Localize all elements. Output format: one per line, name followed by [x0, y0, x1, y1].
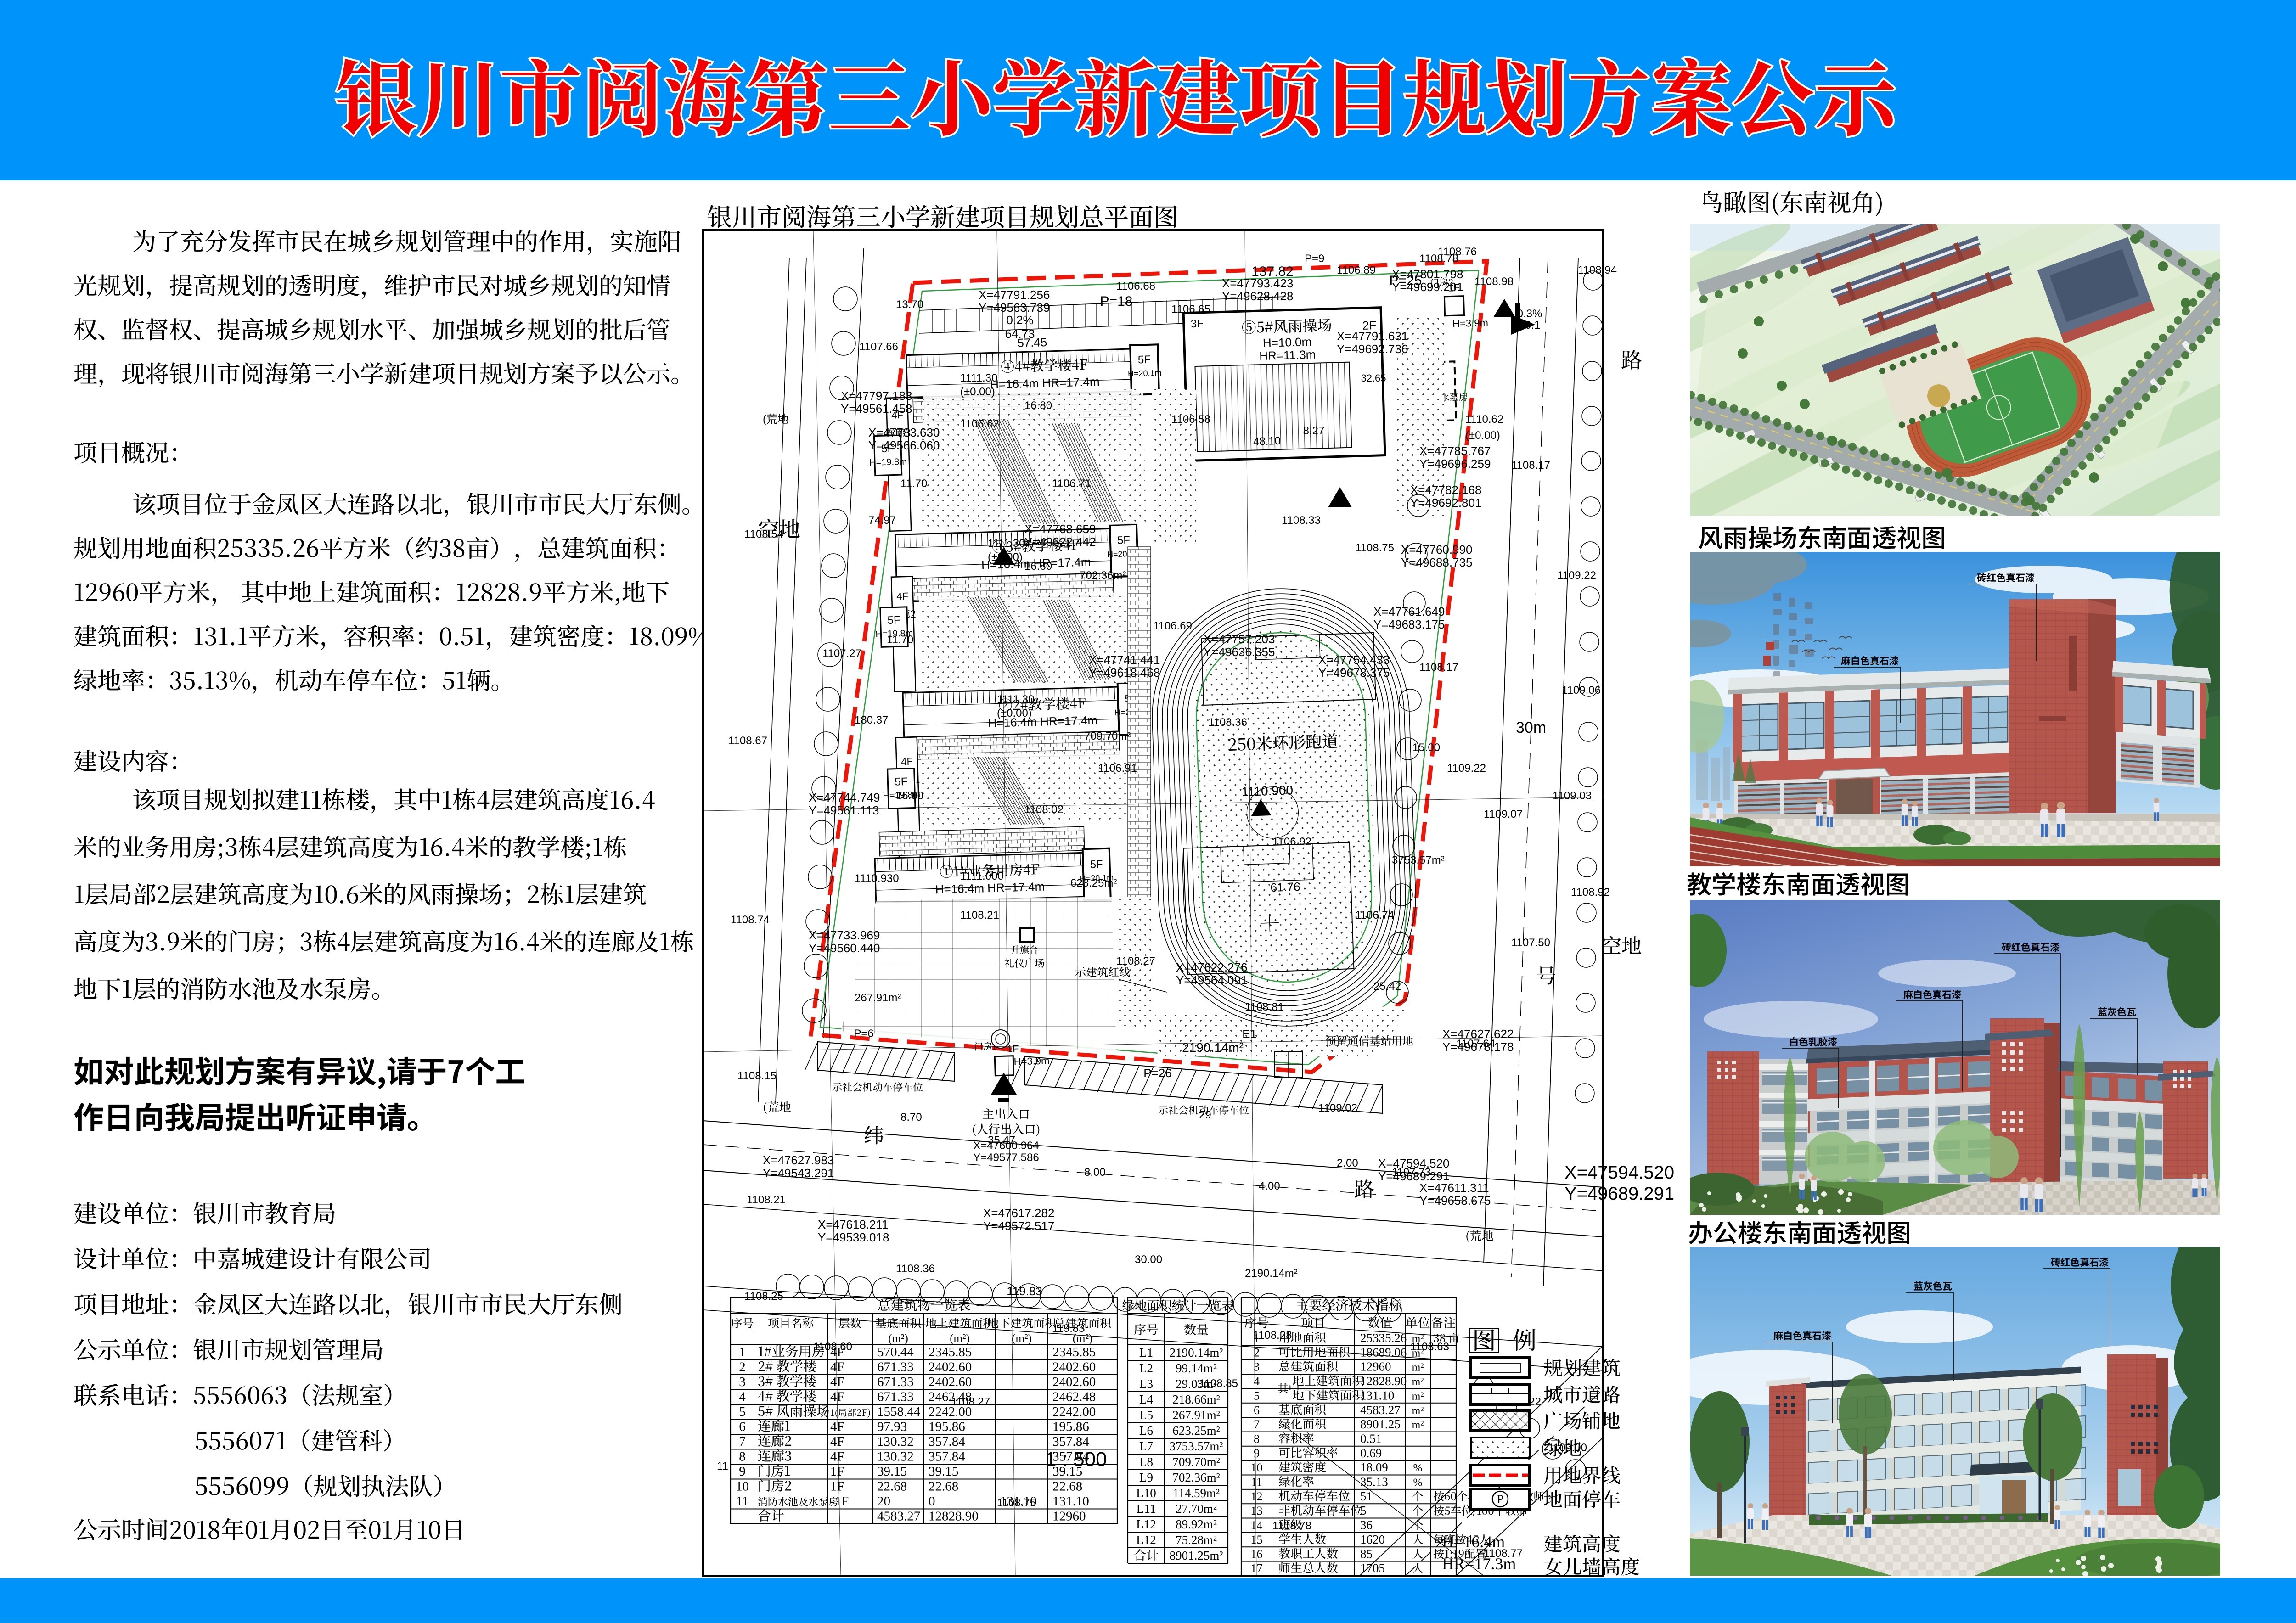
svg-text:1109.00: 1109.00 — [1548, 1442, 1587, 1454]
svg-text:702.36m²: 702.36m² — [1172, 1471, 1220, 1484]
svg-text:1F: 1F — [830, 1464, 844, 1479]
svg-text:1705: 1705 — [1360, 1561, 1385, 1575]
svg-text:X=47783.630: X=47783.630 — [868, 426, 940, 439]
svg-text:131.10: 131.10 — [1360, 1388, 1394, 1402]
svg-text:Y=49689.291: Y=49689.291 — [1564, 1184, 1674, 1204]
svg-text:1111.30: 1111.30 — [988, 537, 1025, 550]
svg-text:H=20.1m: H=20.1m — [1128, 368, 1162, 378]
svg-text:12828.90: 12828.90 — [1360, 1374, 1407, 1388]
svg-text:5F: 5F — [1117, 534, 1131, 547]
svg-text:35.13: 35.13 — [1360, 1475, 1388, 1489]
svg-text:30.00: 30.00 — [1135, 1253, 1162, 1266]
svg-text:L11: L11 — [1137, 1502, 1156, 1516]
svg-text:X=47801.798: X=47801.798 — [1392, 267, 1463, 281]
svg-text:5: 5 — [1360, 1504, 1367, 1517]
svg-text:m²: m² — [1412, 1419, 1424, 1431]
svg-text:29: 29 — [1199, 1109, 1211, 1121]
svg-text:(±0.00): (±0.00) — [997, 707, 1032, 719]
svg-text:H=3.9m: H=3.9m — [1452, 317, 1488, 329]
svg-text:39.15: 39.15 — [929, 1464, 958, 1479]
svg-text:m²: m² — [1412, 1405, 1424, 1417]
svg-text:15: 15 — [1251, 1533, 1263, 1546]
svg-text:%: % — [1413, 1477, 1423, 1489]
svg-text:61.76: 61.76 — [1270, 880, 1300, 894]
svg-text:2190.14m²: 2190.14m² — [1245, 1267, 1298, 1280]
svg-text:0.2%: 0.2% — [1006, 313, 1033, 327]
svg-text:1110.62: 1110.62 — [1465, 413, 1503, 426]
svg-text:1106.74: 1106.74 — [1355, 909, 1394, 921]
svg-text:18689.06: 18689.06 — [1360, 1345, 1407, 1359]
svg-text:Y=49577.586: Y=49577.586 — [973, 1151, 1039, 1164]
svg-text:4F: 4F — [830, 1390, 844, 1404]
svg-text:P: P — [1497, 1493, 1503, 1506]
svg-text:Y=49572.517: Y=49572.517 — [983, 1219, 1054, 1233]
svg-text:H=19.8m: H=19.8m — [869, 457, 907, 468]
svg-text:X=47744.749: X=47744.749 — [809, 791, 880, 804]
svg-text:267.91m²: 267.91m² — [855, 992, 901, 1004]
svg-text:1110.900: 1110.900 — [1241, 783, 1294, 799]
svg-text:14: 14 — [1251, 1519, 1263, 1532]
svg-text:1F: 1F — [830, 1479, 844, 1494]
svg-text:0: 0 — [929, 1494, 935, 1509]
svg-text:Y=49696.259: Y=49696.259 — [1419, 457, 1491, 471]
svg-text:357.84: 357.84 — [1052, 1434, 1089, 1449]
svg-text:H=16.4m: H=16.4m — [1442, 1533, 1505, 1551]
svg-text:4.00: 4.00 — [1259, 1180, 1280, 1192]
svg-text:1108.33: 1108.33 — [1282, 514, 1321, 527]
svg-text:L10: L10 — [1136, 1486, 1156, 1500]
svg-text:1109.22: 1109.22 — [1447, 762, 1486, 775]
svg-text:2242.00: 2242.00 — [1052, 1404, 1096, 1419]
svg-text:11.70: 11.70 — [900, 477, 927, 490]
svg-text:8: 8 — [739, 1449, 746, 1464]
svg-text:3F: 3F — [1190, 318, 1204, 331]
svg-text:3753.57m²: 3753.57m² — [1170, 1439, 1223, 1453]
svg-text:1108.75: 1108.75 — [1355, 542, 1394, 554]
svg-text:L3: L3 — [1139, 1377, 1153, 1391]
svg-text:22.68: 22.68 — [1052, 1479, 1082, 1494]
svg-text:P=6: P=6 — [854, 1028, 873, 1040]
svg-text:15.00: 15.00 — [1412, 741, 1440, 754]
svg-text:6: 6 — [1254, 1404, 1260, 1417]
svg-text:0.69: 0.69 — [1360, 1446, 1382, 1460]
svg-text:m²: m² — [1412, 1390, 1424, 1402]
svg-text:2.00: 2.00 — [1337, 1157, 1358, 1169]
svg-text:1107.66: 1107.66 — [859, 341, 898, 353]
svg-text:8901.25: 8901.25 — [1360, 1417, 1401, 1431]
svg-text:(±0.00): (±0.00) — [1465, 429, 1500, 442]
svg-text:Y=49563.739: Y=49563.739 — [979, 301, 1050, 314]
svg-text:1106.58: 1106.58 — [1171, 413, 1210, 426]
svg-text:P=18: P=18 — [1100, 294, 1133, 309]
svg-text:0.3%: 0.3% — [1517, 308, 1542, 320]
svg-text:22.68: 22.68 — [929, 1479, 958, 1494]
svg-text:2402.60: 2402.60 — [929, 1360, 972, 1375]
svg-text:P=26: P=26 — [1143, 1066, 1171, 1080]
svg-text:Y=49658.675: Y=49658.675 — [1419, 1194, 1491, 1207]
svg-text:4F: 4F — [830, 1345, 844, 1359]
svg-text:Y=49564.091: Y=49564.091 — [1176, 973, 1247, 987]
svg-text:Y=49683.175: Y=49683.175 — [1373, 618, 1445, 631]
svg-text:25335.26: 25335.26 — [1360, 1331, 1407, 1345]
svg-text:m²: m² — [1412, 1347, 1424, 1359]
svg-text:20: 20 — [877, 1494, 890, 1509]
svg-text:1106.69: 1106.69 — [1153, 620, 1192, 632]
svg-text:32.65: 32.65 — [1361, 372, 1386, 384]
svg-text:3753.57m²: 3753.57m² — [1392, 854, 1445, 866]
svg-text:16.80: 16.80 — [1024, 399, 1052, 412]
svg-text:1111.30: 1111.30 — [960, 372, 997, 384]
svg-text:267.91m²: 267.91m² — [1172, 1408, 1220, 1422]
svg-text:1107.50: 1107.50 — [1511, 937, 1550, 949]
svg-text:1106.62: 1106.62 — [960, 418, 999, 430]
svg-text:623.25m²: 623.25m² — [1070, 877, 1117, 889]
svg-text:X=47618.211: X=47618.211 — [818, 1218, 889, 1231]
svg-text:-1F: -1F — [830, 1494, 849, 1509]
svg-text:5F: 5F — [887, 614, 900, 627]
svg-text:8: 8 — [1254, 1432, 1260, 1445]
svg-text:L2: L2 — [1139, 1361, 1153, 1375]
svg-text:9: 9 — [739, 1464, 746, 1479]
svg-text:1109.06: 1109.06 — [1562, 684, 1601, 696]
svg-text:1106.89: 1106.89 — [1337, 264, 1376, 276]
svg-text:Y=49561.458: Y=49561.458 — [841, 402, 912, 416]
svg-text:13.70: 13.70 — [896, 298, 923, 311]
svg-text:195.86: 195.86 — [929, 1420, 965, 1434]
svg-text:(荒地: (荒地 — [763, 413, 788, 426]
svg-text:4F: 4F — [830, 1449, 844, 1464]
svg-text:8.00: 8.00 — [1084, 1166, 1106, 1179]
svg-text:L12: L12 — [1136, 1517, 1156, 1531]
svg-text:16.60: 16.60 — [896, 790, 923, 802]
svg-text:4: 4 — [739, 1390, 746, 1404]
svg-text:30m: 30m — [1516, 719, 1546, 736]
svg-text:1107.27: 1107.27 — [822, 647, 861, 660]
svg-text:75.28m²: 75.28m² — [1176, 1533, 1217, 1547]
svg-text:4F: 4F — [901, 756, 913, 768]
svg-text:L12: L12 — [1136, 1533, 1156, 1547]
svg-text:Y=49678.375: Y=49678.375 — [1318, 666, 1390, 680]
svg-text:1108.17: 1108.17 — [1511, 459, 1550, 472]
svg-text:1106.91: 1106.91 — [1098, 762, 1137, 775]
svg-text:3: 3 — [739, 1375, 746, 1389]
svg-text:5F: 5F — [895, 775, 908, 788]
svg-text:4583.27: 4583.27 — [877, 1509, 920, 1524]
svg-text:Y=49688.735: Y=49688.735 — [1401, 556, 1472, 569]
svg-text:1620: 1620 — [1360, 1533, 1385, 1546]
svg-text:1108.25: 1108.25 — [744, 1290, 783, 1303]
svg-text:Y=49699.201: Y=49699.201 — [1392, 280, 1463, 294]
svg-text:X=47761.649: X=47761.649 — [1373, 605, 1445, 618]
svg-text:L1: L1 — [1139, 1346, 1153, 1359]
svg-text:Y=49560.440: Y=49560.440 — [809, 941, 880, 955]
svg-text:X=47617.282: X=47617.282 — [983, 1206, 1054, 1220]
svg-text:1109.22: 1109.22 — [1557, 569, 1596, 582]
svg-text:X=47594.520: X=47594.520 — [1564, 1162, 1674, 1183]
svg-text:X=47791.256: X=47791.256 — [979, 288, 1050, 302]
svg-text:0.51: 0.51 — [1360, 1432, 1382, 1445]
svg-text:195.86: 195.86 — [1052, 1420, 1089, 1434]
svg-text:Y=49692.801: Y=49692.801 — [1410, 496, 1481, 510]
svg-text:1108.15: 1108.15 — [737, 1070, 777, 1082]
svg-text:HR=11.3m: HR=11.3m — [1259, 348, 1316, 363]
svg-text:1108.92: 1108.92 — [1571, 886, 1610, 899]
svg-text:74.97: 74.97 — [868, 514, 896, 527]
svg-text:36: 36 — [1360, 1518, 1373, 1532]
svg-text:2190.14m²: 2190.14m² — [1170, 1346, 1223, 1359]
svg-text:1106.92: 1106.92 — [1272, 836, 1311, 848]
svg-text:8.70: 8.70 — [900, 1111, 922, 1123]
svg-text:18.09: 18.09 — [1360, 1460, 1388, 1474]
svg-text:X=47733.969: X=47733.969 — [809, 928, 880, 942]
svg-text:671.33: 671.33 — [877, 1390, 914, 1404]
svg-text:702.36m²: 702.36m² — [1080, 569, 1126, 582]
svg-text:4583.27: 4583.27 — [1360, 1403, 1401, 1417]
svg-text:85: 85 — [1360, 1547, 1373, 1561]
svg-text:131.10: 131.10 — [1052, 1494, 1089, 1509]
svg-text:12: 12 — [1251, 1490, 1263, 1503]
svg-text:357.84: 357.84 — [929, 1449, 965, 1464]
svg-text:Y=49566.060: Y=49566.060 — [868, 438, 940, 452]
svg-text:39.15: 39.15 — [1052, 1464, 1082, 1479]
svg-text:Y=49539.018: Y=49539.018 — [818, 1230, 889, 1244]
svg-text:114.59m²: 114.59m² — [1173, 1486, 1220, 1500]
svg-text:m²: m² — [1412, 1376, 1424, 1388]
svg-text:13: 13 — [1251, 1504, 1263, 1517]
svg-text:X=47627.983: X=47627.983 — [763, 1153, 834, 1167]
svg-text:2345.85: 2345.85 — [1052, 1345, 1096, 1359]
svg-text:1F: 1F — [1007, 1043, 1019, 1055]
svg-text:218.66m²: 218.66m² — [1172, 1393, 1220, 1406]
svg-text:5: 5 — [739, 1404, 746, 1419]
svg-text:X=47594.520: X=47594.520 — [1378, 1157, 1449, 1170]
svg-text:X=47754.433: X=47754.433 — [1318, 653, 1390, 667]
svg-text:1106.65: 1106.65 — [1171, 303, 1210, 315]
svg-text:Y=49689.291: Y=49689.291 — [1378, 1169, 1449, 1183]
svg-text:Y=49628.428: Y=49628.428 — [1222, 289, 1293, 303]
svg-text:E1: E1 — [1242, 1027, 1257, 1041]
svg-text:L4: L4 — [1139, 1393, 1153, 1406]
svg-text:48.10: 48.10 — [1253, 435, 1281, 448]
svg-text:8901.25m²: 8901.25m² — [1170, 1549, 1223, 1562]
svg-text:5: 5 — [1254, 1389, 1260, 1402]
svg-text:671.33: 671.33 — [877, 1360, 914, 1375]
svg-text:m²: m² — [1412, 1362, 1424, 1374]
svg-text:1558.44: 1558.44 — [877, 1404, 921, 1419]
svg-text:X=47791.631: X=47791.631 — [1337, 329, 1408, 343]
svg-text:1109.02: 1109.02 — [1318, 1102, 1357, 1114]
svg-text:130.32: 130.32 — [877, 1449, 914, 1464]
svg-text:(m²): (m²) — [888, 1332, 908, 1345]
svg-text:357.84: 357.84 — [1052, 1449, 1089, 1464]
svg-text:1: 1 — [739, 1345, 746, 1359]
svg-text:4F: 4F — [830, 1375, 844, 1389]
svg-text:12960: 12960 — [1052, 1509, 1086, 1524]
svg-text:X=47757.203: X=47757.203 — [1204, 632, 1275, 646]
svg-text:2462.48: 2462.48 — [929, 1390, 972, 1404]
svg-text:99.14m²: 99.14m² — [1176, 1361, 1217, 1375]
svg-text:2242.00: 2242.00 — [929, 1404, 972, 1419]
svg-text:3: 3 — [1254, 1360, 1260, 1374]
svg-text:10: 10 — [736, 1479, 749, 1494]
svg-text:8.27: 8.27 — [1303, 425, 1325, 437]
svg-text:671.33: 671.33 — [877, 1375, 914, 1389]
svg-text:X=47793.423: X=47793.423 — [1222, 276, 1293, 290]
svg-text:1108.54: 1108.54 — [744, 528, 783, 540]
svg-text:1108.78: 1108.78 — [1419, 253, 1458, 265]
svg-text:709.70m²: 709.70m² — [1172, 1455, 1220, 1469]
svg-text:2402.60: 2402.60 — [1052, 1375, 1096, 1389]
svg-text:X=47627.622: X=47627.622 — [1442, 1027, 1514, 1041]
svg-text:1108.36: 1108.36 — [1208, 716, 1247, 729]
svg-text:180.37: 180.37 — [855, 714, 888, 726]
svg-text:16.80: 16.80 — [1024, 560, 1052, 573]
svg-text:2402.60: 2402.60 — [929, 1375, 972, 1389]
svg-text:1108.36: 1108.36 — [896, 1263, 935, 1275]
svg-text:1108.98: 1108.98 — [1474, 275, 1514, 288]
svg-text:HR=17.3m: HR=17.3m — [1442, 1555, 1516, 1573]
svg-text:2345.85: 2345.85 — [929, 1345, 972, 1359]
svg-text:L8: L8 — [1139, 1455, 1153, 1469]
svg-text:2: 2 — [739, 1360, 746, 1375]
svg-text:L6: L6 — [1139, 1424, 1153, 1438]
svg-text:4F: 4F — [830, 1420, 844, 1434]
svg-text:130.32: 130.32 — [877, 1434, 914, 1449]
svg-text:1108.94: 1108.94 — [1578, 264, 1617, 276]
svg-text:11: 11 — [1251, 1476, 1262, 1489]
svg-text:(m²): (m²) — [950, 1332, 970, 1345]
svg-text:89.92m²: 89.92m² — [1176, 1517, 1217, 1531]
svg-text:1108.81: 1108.81 — [1245, 1001, 1284, 1013]
svg-text:Y=49636.355: Y=49636.355 — [1204, 645, 1275, 659]
svg-text:L5: L5 — [1139, 1408, 1153, 1422]
svg-text:12960: 12960 — [1360, 1360, 1391, 1374]
svg-text:Y=49622.442: Y=49622.442 — [1024, 535, 1096, 549]
svg-text:5F: 5F — [1090, 858, 1103, 871]
svg-text:25.42: 25.42 — [1373, 980, 1401, 993]
svg-text:4F: 4F — [896, 590, 908, 602]
svg-text:35.47: 35.47 — [988, 1134, 1015, 1146]
svg-text:X=47768.659: X=47768.659 — [1024, 522, 1096, 536]
svg-text:570.44: 570.44 — [877, 1345, 914, 1359]
svg-text:4F: 4F — [830, 1434, 844, 1449]
svg-text:(±0.00): (±0.00) — [960, 386, 995, 398]
svg-text:2402.60: 2402.60 — [1052, 1360, 1096, 1375]
svg-text:5F: 5F — [1138, 354, 1151, 366]
svg-text:16: 16 — [1251, 1547, 1263, 1561]
svg-text:10: 10 — [1251, 1461, 1263, 1474]
svg-text:1108.17: 1108.17 — [1419, 661, 1458, 674]
svg-text:1108.74: 1108.74 — [731, 914, 770, 926]
svg-text:1111.000: 1111.000 — [960, 870, 1004, 882]
svg-text:11: 11 — [736, 1494, 749, 1509]
svg-text:X=47760.990: X=47760.990 — [1401, 543, 1472, 556]
svg-text:1109.03: 1109.03 — [1553, 790, 1592, 802]
svg-text:57.45: 57.45 — [1017, 335, 1047, 350]
svg-text:(m²): (m²) — [1012, 1332, 1032, 1345]
svg-text:Y=49561.113: Y=49561.113 — [809, 803, 879, 817]
svg-text:L9: L9 — [1139, 1471, 1153, 1484]
svg-text:11: 11 — [717, 1460, 728, 1472]
svg-text:623.25m²: 623.25m² — [1172, 1424, 1220, 1438]
svg-text:X=47785.767: X=47785.767 — [1419, 444, 1491, 458]
svg-text:709.70m²: 709.70m² — [1084, 730, 1131, 742]
svg-text:P=9: P=9 — [1305, 253, 1324, 265]
svg-text:7: 7 — [1254, 1418, 1260, 1431]
svg-text:%: % — [1413, 1462, 1423, 1474]
svg-text:27.70m²: 27.70m² — [1176, 1502, 1217, 1516]
svg-text:Y=49618.468: Y=49618.468 — [1089, 666, 1160, 680]
svg-text:29.03m²: 29.03m² — [1176, 1377, 1217, 1391]
svg-text:(±0.00): (±0.00) — [988, 551, 1023, 563]
svg-text:22.68: 22.68 — [877, 1479, 907, 1494]
svg-text:1108.21: 1108.21 — [747, 1194, 786, 1206]
svg-text:1: 1 — [1254, 1331, 1260, 1345]
svg-text:6: 6 — [739, 1420, 746, 1434]
svg-text:X=47622.276: X=47622.276 — [1176, 960, 1247, 974]
svg-text:1108.67: 1108.67 — [728, 735, 767, 747]
svg-text:4: 4 — [1254, 1375, 1260, 1388]
svg-text:L7: L7 — [1139, 1439, 1153, 1453]
svg-text:m²: m² — [1412, 1333, 1424, 1345]
svg-text:2: 2 — [1254, 1346, 1260, 1359]
svg-text:2462.48: 2462.48 — [1052, 1390, 1096, 1404]
svg-text:119.83: 119.83 — [1007, 1284, 1042, 1298]
svg-text:Y=49678.178: Y=49678.178 — [1442, 1040, 1514, 1054]
svg-text:1108.27: 1108.27 — [1116, 955, 1155, 967]
svg-text:Y=49692.736: Y=49692.736 — [1337, 342, 1408, 356]
svg-text:357.84: 357.84 — [929, 1434, 965, 1449]
svg-text:9: 9 — [1254, 1447, 1260, 1460]
svg-text:17: 17 — [1251, 1562, 1263, 1575]
svg-text:7: 7 — [739, 1434, 746, 1449]
svg-text:(m²): (m²) — [1073, 1332, 1093, 1345]
svg-text:Y=49543.291: Y=49543.291 — [763, 1166, 834, 1180]
svg-text:11.70: 11.70 — [887, 634, 913, 646]
svg-text:12828.90: 12828.90 — [929, 1509, 979, 1524]
svg-text:131.10: 131.10 — [1000, 1494, 1037, 1509]
svg-text:X=47782.168: X=47782.168 — [1410, 483, 1481, 497]
svg-text:51: 51 — [1360, 1489, 1373, 1503]
svg-text:1106.68: 1106.68 — [1116, 280, 1155, 292]
svg-text:4F: 4F — [830, 1360, 844, 1375]
svg-text:1111.30: 1111.30 — [997, 693, 1034, 706]
svg-text:97.93: 97.93 — [877, 1420, 907, 1434]
svg-text:1109.07: 1109.07 — [1484, 808, 1523, 820]
svg-text:1108.21: 1108.21 — [960, 909, 999, 921]
svg-text:1106.71: 1106.71 — [1052, 477, 1091, 490]
svg-text:X=47797.183: X=47797.183 — [841, 389, 912, 403]
svg-text:39.15: 39.15 — [877, 1464, 907, 1479]
svg-text:X=47741.441: X=47741.441 — [1089, 653, 1160, 667]
svg-text:1110.930: 1110.930 — [855, 872, 899, 885]
